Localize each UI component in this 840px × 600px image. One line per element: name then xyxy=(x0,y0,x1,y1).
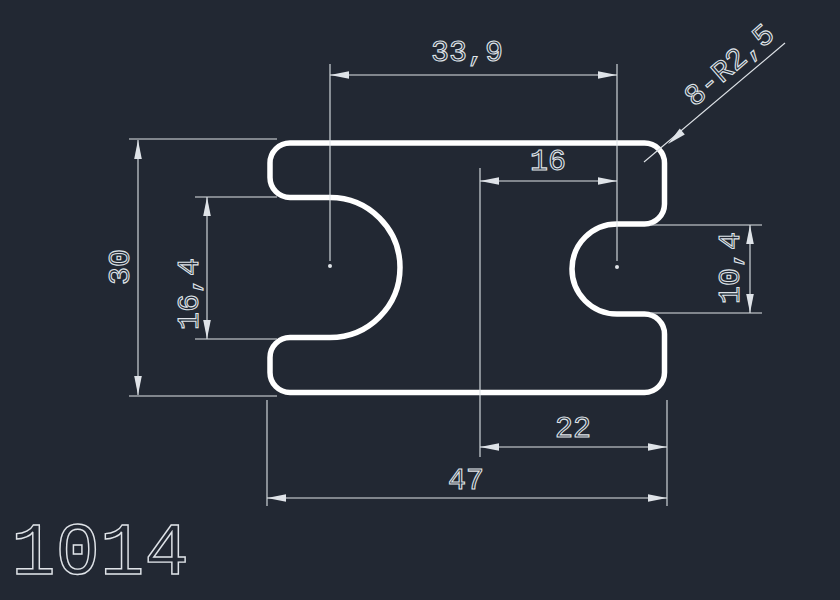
dim-16-label: 16 xyxy=(530,145,566,179)
dim-22-label: 22 xyxy=(555,412,591,446)
left-arc-center-mark xyxy=(328,264,332,268)
dim-16-4-label: 16,4 xyxy=(173,258,207,330)
dim-47-label: 47 xyxy=(448,464,484,498)
part-number-label: 1014 xyxy=(11,512,189,596)
dim-30-label: 30 xyxy=(104,249,138,285)
cad-drawing: 33,9 8-R2,5 16 30 16,4 10,4 22 47 1014 xyxy=(0,0,840,600)
dim-33-9-label: 33,9 xyxy=(431,36,503,70)
dim-10-4-label: 10,4 xyxy=(714,232,748,304)
drawing-canvas: 33,9 8-R2,5 16 30 16,4 10,4 22 47 1014 xyxy=(0,0,840,600)
right-arc-center-mark xyxy=(615,265,619,269)
